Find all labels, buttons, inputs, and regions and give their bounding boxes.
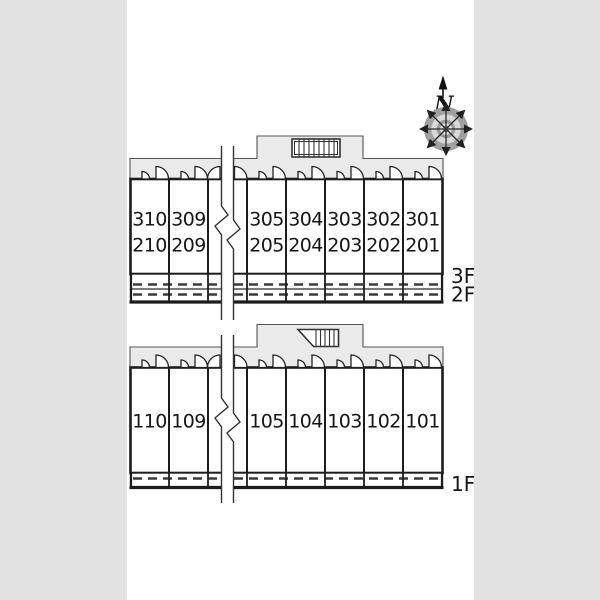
floor-plan-drawing: 310 210 309 209 305 205 304 204 303 203 …	[0, 0, 600, 600]
room-number: 105	[249, 411, 283, 433]
room-number: 204	[288, 235, 323, 257]
room-number: 210	[132, 235, 166, 257]
room-number: 103	[327, 411, 361, 433]
room-number: 304	[288, 209, 323, 231]
room-number: 202	[366, 235, 400, 257]
room-number: 301	[405, 209, 439, 231]
floor-plan-page: 310 210 309 209 305 205 304 204 303 203 …	[0, 0, 600, 600]
stairs-icon	[292, 139, 340, 157]
room-number: 309	[171, 209, 205, 231]
upper-building: 310 210 309 209 305 205 304 204 303 203 …	[130, 136, 476, 320]
floor-label-2f: 2F	[451, 283, 475, 307]
floor-label-1f: 1F	[451, 472, 475, 496]
room-number: 201	[405, 235, 439, 257]
room-number: 109	[171, 411, 205, 433]
room-number: 110	[132, 411, 166, 433]
lower-balcony-strip	[130, 473, 444, 488]
room-number: 302	[366, 209, 400, 231]
room-number: 101	[405, 411, 439, 433]
room-number: 104	[288, 411, 323, 433]
room-number: 310	[132, 209, 166, 231]
room-number: 203	[327, 235, 361, 257]
room-number: 102	[366, 411, 400, 433]
room-number: 205	[249, 235, 283, 257]
room-number: 209	[171, 235, 205, 257]
upper-balcony-strips	[130, 274, 444, 302]
room-number: 305	[249, 209, 283, 231]
lower-building: 110 109 105 104 103 102 101 1F	[130, 325, 476, 504]
room-number: 303	[327, 209, 361, 231]
compass-rose-icon	[422, 105, 471, 154]
